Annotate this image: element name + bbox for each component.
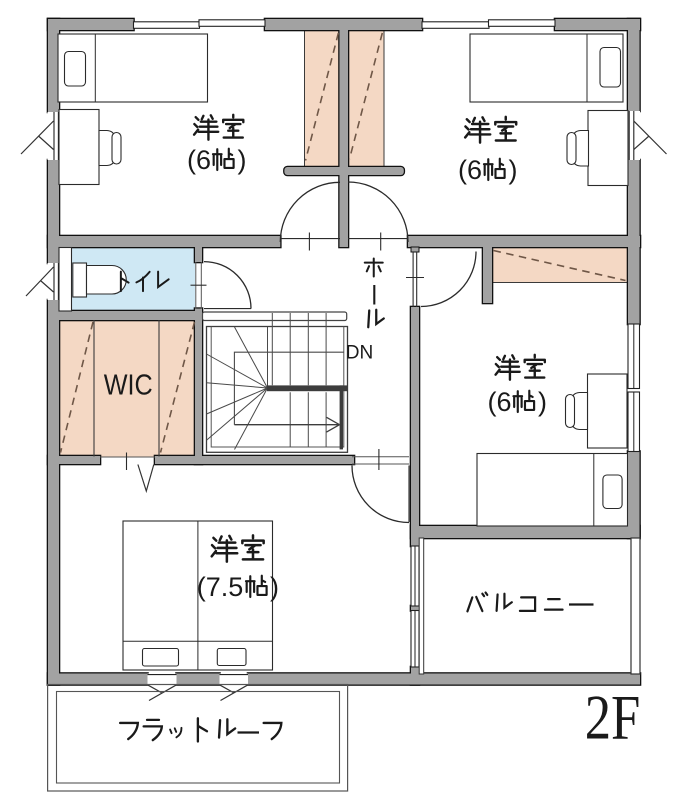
svg-text:(7.5: (7.5 bbox=[197, 572, 244, 602]
svg-text:2F: 2F bbox=[585, 683, 641, 753]
svg-text:(6: (6 bbox=[458, 155, 482, 185]
svg-text:): ) bbox=[270, 572, 279, 602]
svg-text:): ) bbox=[509, 155, 518, 185]
svg-text:WIC: WIC bbox=[104, 370, 153, 402]
svg-text:): ) bbox=[538, 387, 547, 417]
svg-text:DN: DN bbox=[346, 342, 374, 364]
svg-text:(6: (6 bbox=[187, 145, 211, 175]
svg-text:): ) bbox=[238, 145, 247, 175]
svg-text:(6: (6 bbox=[488, 387, 512, 417]
